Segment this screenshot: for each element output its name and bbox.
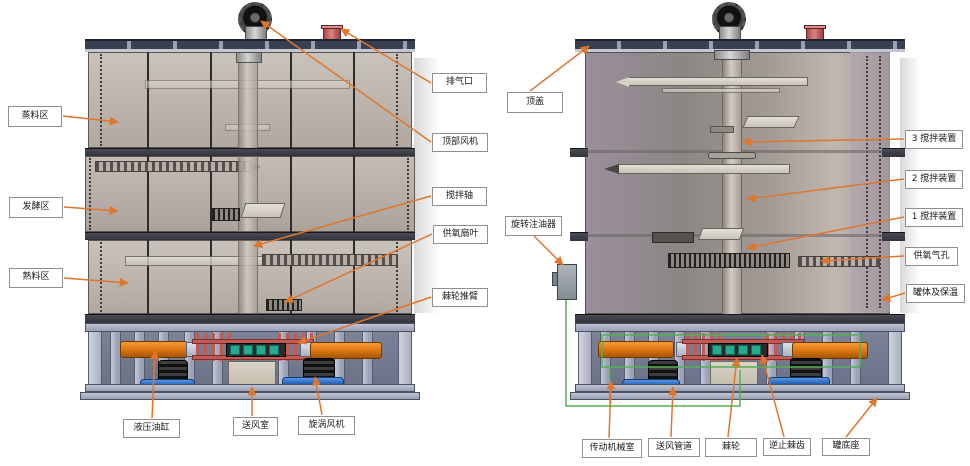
annotation-tank-base: 罐底座 — [822, 438, 870, 456]
annotation-oxygen-fan-blade: 供氧扇叶 — [433, 225, 488, 244]
annotation-stir-device-1: 1 搅拌装置 — [905, 208, 963, 227]
annotation-non-return-pawl: 逆止棘齿 — [763, 438, 811, 456]
annotation-transmission-room: 传动机械室 — [582, 439, 642, 458]
annotation-ratchet: 棘轮 — [705, 438, 757, 457]
diagram-canvas: 蒸料区 发酵区 熟料区 排气口 顶部风机 搅拌轴 供氧扇叶 棘轮推臂 液压油缸 … — [0, 0, 970, 466]
annotation-air-supply-chamber: 送风室 — [233, 417, 278, 436]
annotation-air-duct: 送风管道 — [648, 438, 700, 457]
annotation-rotary-oiler: 旋转注油器 — [505, 216, 562, 236]
annotation-stir-shaft: 搅拌轴 — [432, 187, 487, 206]
annotation-stir-device-3: 3 搅拌装置 — [905, 130, 963, 149]
annotation-oxygen-holes: 供氧气孔 — [905, 247, 958, 266]
annotation-top-fan: 顶部风机 — [432, 133, 488, 152]
annotation-ferment-zone: 发酵区 — [9, 197, 63, 218]
annotation-ratchet-push-arm: 棘轮推臂 — [432, 288, 488, 307]
annotation-steam-zone: 蒸料区 — [8, 106, 62, 127]
annotation-exhaust-port: 排气口 — [432, 73, 487, 93]
annotation-hydraulic-cylinder: 液压油缸 — [123, 419, 180, 438]
annotation-vortex-fan: 旋涡风机 — [298, 416, 355, 435]
annotation-top-cover: 顶盖 — [507, 92, 563, 113]
annotation-stir-device-2: 2 搅拌装置 — [905, 170, 963, 189]
annotation-cooked-zone: 熟料区 — [9, 268, 63, 288]
annotation-tank-insulation: 罐体及保温 — [906, 284, 965, 303]
